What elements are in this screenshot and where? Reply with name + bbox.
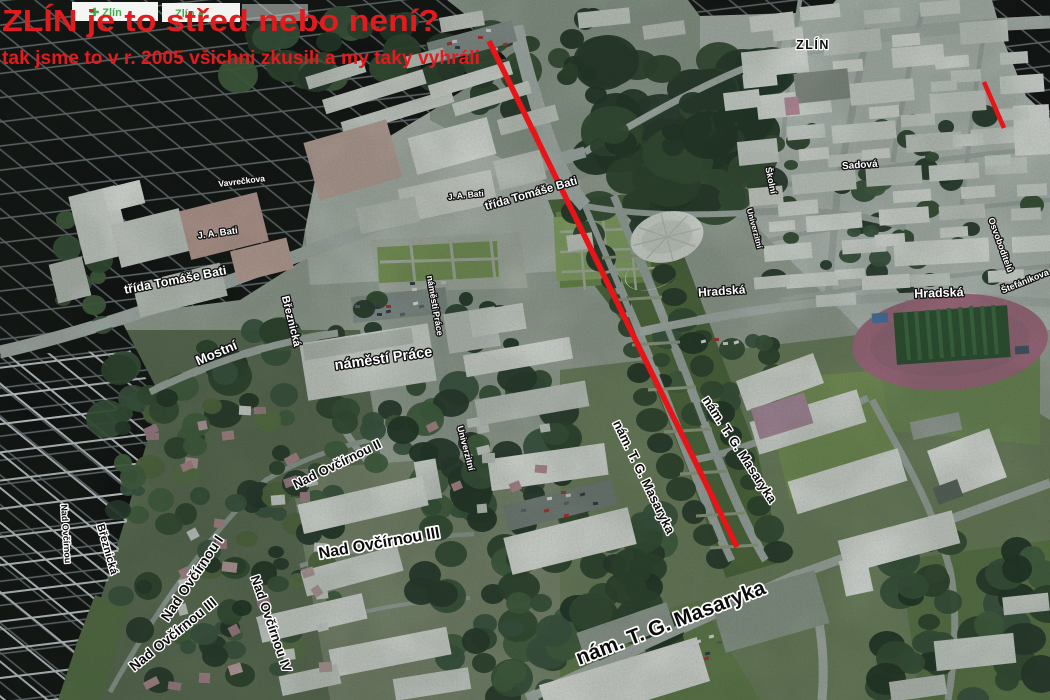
svg-text:tak jsme to v r. 2005 všichni: tak jsme to v r. 2005 všichni zkusili a … xyxy=(2,47,480,69)
svg-text:ZLÍN: ZLÍN xyxy=(796,37,830,52)
svg-text:Hradská: Hradská xyxy=(914,285,964,301)
svg-text:ZLÍN je to střed nebo není?: ZLÍN je to střed nebo není? xyxy=(2,3,439,38)
